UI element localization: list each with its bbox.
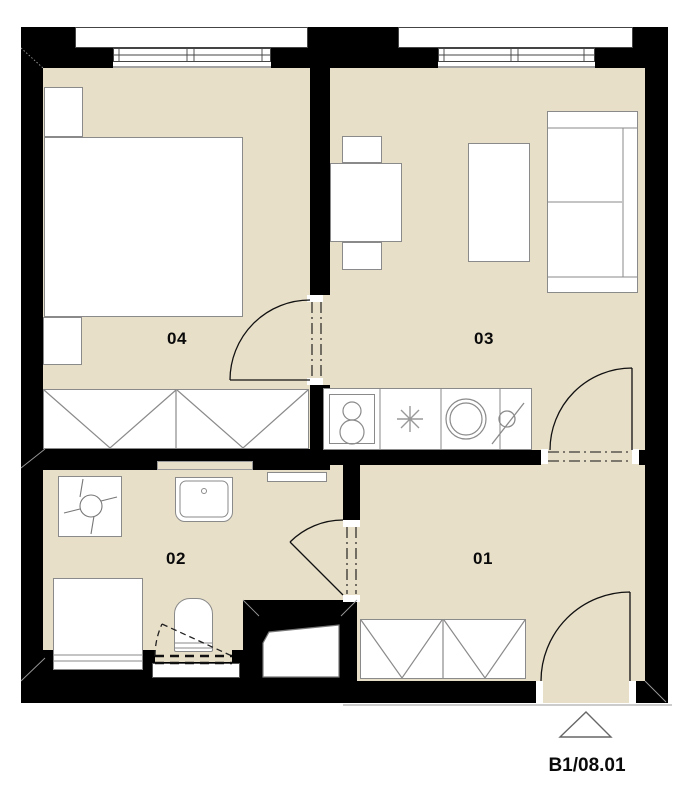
room-label-04: 04	[167, 329, 187, 349]
sofa	[547, 111, 638, 293]
entrance-door-jamb	[629, 681, 636, 703]
radiator	[267, 472, 327, 482]
window-room-03	[438, 48, 595, 62]
wall-between-03-01	[330, 450, 541, 465]
washing-machine	[58, 476, 122, 537]
room-label-02: 02	[166, 549, 186, 569]
wall-between-03-01	[639, 450, 668, 465]
window-room-04	[113, 48, 271, 62]
door-jamb	[307, 295, 323, 302]
chair	[342, 136, 382, 163]
wall-segment	[271, 48, 438, 68]
wall-bottom	[21, 681, 536, 703]
bathroom-door-sill	[152, 663, 240, 678]
floor-plan: 04 03 02 01 B1/08.01	[0, 0, 686, 795]
room-label-03: 03	[474, 329, 494, 349]
bathtub	[53, 578, 143, 670]
utility-shaft-wall	[243, 600, 357, 681]
dining-table	[330, 163, 402, 242]
wall-between-04-03	[310, 68, 330, 295]
door-jamb	[632, 449, 639, 464]
wall-bottom	[636, 681, 668, 703]
window-sill	[75, 27, 308, 48]
wall-segment	[308, 27, 398, 48]
wardrobe-room-04	[43, 389, 309, 449]
nightstand	[44, 87, 83, 137]
wash-basin	[175, 477, 233, 522]
stove	[329, 394, 375, 444]
cabinet	[468, 143, 530, 262]
vanity-shelf	[157, 461, 253, 470]
entrance-marker-triangle	[560, 712, 611, 737]
wall-left	[21, 27, 43, 703]
wall-between-02-01	[343, 462, 360, 520]
wardrobe-room-01	[360, 619, 526, 679]
wall-right	[645, 27, 668, 703]
entrance-opening-floor	[543, 681, 629, 703]
unit-code-label: B1/08.01	[548, 755, 625, 777]
bed	[44, 137, 243, 317]
entrance-door-jamb	[536, 681, 543, 703]
window-reveal	[113, 62, 271, 68]
window-sill	[398, 27, 633, 48]
chair	[342, 242, 382, 270]
window-reveal	[438, 62, 595, 68]
nightstand	[43, 317, 82, 365]
door-jamb	[343, 595, 360, 602]
door-jamb	[307, 378, 323, 385]
toilet	[174, 598, 213, 652]
room-label-01: 01	[473, 549, 493, 569]
door-jamb	[541, 449, 548, 464]
door-jamb	[343, 520, 360, 527]
wall-segment	[43, 48, 113, 68]
